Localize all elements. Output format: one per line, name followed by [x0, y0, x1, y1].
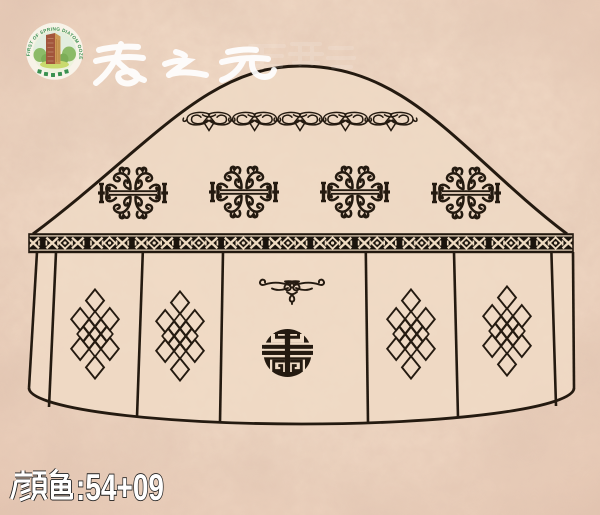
svg-text::54+09: :54+09: [76, 467, 164, 508]
